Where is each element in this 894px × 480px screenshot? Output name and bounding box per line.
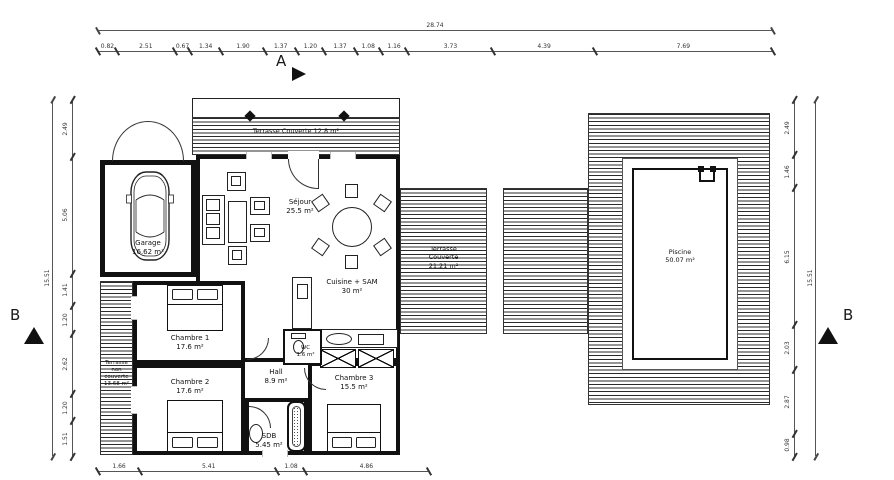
wardrobe	[358, 349, 394, 368]
floor-plan-drawing: 28.74 0.822.510.671.341.901.371.201.371.…	[0, 0, 894, 480]
dining-table	[332, 207, 372, 247]
section-arrow-a-icon	[292, 67, 306, 81]
dimension-value: 3.73	[407, 43, 493, 50]
room-label-terrasse-couverte-right: Terrasse Couverte 21.21 m²	[401, 245, 486, 270]
blanket-line	[168, 304, 222, 305]
room-label-terrasse-non-couverte: Terrasse non couverte 13.68 m²	[101, 360, 132, 388]
sofa-cushion	[206, 199, 220, 211]
room-label-garage: Garage 16.62 m²	[105, 239, 191, 257]
pillow	[197, 289, 218, 300]
dimension-line-right-total: 15.51	[815, 100, 816, 456]
section-label-a: A	[276, 52, 286, 70]
dimension-value: 4.86	[305, 463, 428, 470]
sofa-cushion	[206, 213, 220, 225]
wardrobe	[320, 349, 356, 368]
dimension-segment: 2.62	[63, 334, 73, 394]
pillow	[172, 289, 193, 300]
entrance-door-leaf	[318, 159, 319, 189]
blanket-line	[328, 432, 380, 433]
room-label-terrasse-couverte-top: Terrasse Couverte 12.8 m²	[193, 127, 399, 135]
dimension-segment: 0.82	[98, 40, 117, 52]
dimension-segment: 1.08	[356, 40, 381, 52]
section-label-b-right: B	[843, 306, 853, 324]
dimension-segment: 1.08	[277, 460, 304, 472]
section-label-b-left: B	[10, 306, 20, 324]
armchair	[250, 197, 270, 215]
dimension-value: 1.08	[356, 43, 381, 50]
dimension-value: 28.74	[98, 22, 772, 29]
pillow	[332, 437, 352, 448]
garage-door-arc	[148, 121, 184, 161]
dimension-segment: 3.73	[407, 40, 493, 52]
room-label-cuisine: Cuisine + SAM 30 m²	[317, 278, 387, 296]
dimension-value: 4.39	[493, 43, 594, 50]
section-arrow-b-right-icon	[818, 327, 838, 344]
dimension-segment: 2.03	[785, 325, 795, 370]
dimension-value: 15.51	[807, 269, 814, 286]
dimension-segment: 1.34	[190, 40, 221, 52]
toilet-tank	[291, 333, 306, 339]
room-label-chambre-1: Chambre 1 17.6 m²	[160, 334, 220, 352]
dimension-line-top-total: 28.74	[98, 30, 772, 31]
dimension-value: 7.69	[595, 43, 772, 50]
dimension-value: 2.62	[62, 357, 69, 370]
bed	[167, 285, 223, 331]
section-marker-b-right: B	[818, 306, 864, 350]
dimension-value: 1.37	[265, 43, 297, 50]
dining-chair	[345, 255, 358, 269]
dimension-value: 1.46	[784, 165, 791, 178]
window	[131, 296, 137, 320]
dimension-segment: 0.98	[785, 434, 795, 456]
dimension-value: 2.51	[117, 43, 175, 50]
dimension-value: 1.20	[62, 401, 69, 414]
room-label-chambre-3: Chambre 3 15.5 m²	[322, 374, 386, 392]
dimension-segments-right: 2.491.466.152.032.870.98	[785, 100, 795, 456]
dimension-value: 5.41	[140, 463, 277, 470]
dimension-value: 5.06	[62, 209, 69, 222]
room-label-hall: Hall 8.9 m²	[256, 368, 296, 386]
dimension-value: 15.51	[44, 269, 51, 286]
dimension-segment: 1.20	[297, 40, 325, 52]
garage-door-arc	[112, 121, 148, 161]
window	[246, 152, 272, 159]
window	[330, 152, 356, 159]
dimension-segment: 2.51	[117, 40, 175, 52]
dimension-segment: 4.39	[493, 40, 594, 52]
armchair-seat	[254, 228, 265, 237]
pool-ladder-icon	[699, 170, 715, 182]
dimension-segment: 5.41	[140, 460, 277, 472]
dimension-segment: 7.69	[595, 40, 772, 52]
coffee-table	[228, 201, 247, 243]
piscine: Piscine 50.07 m²	[632, 168, 728, 360]
dimension-value: 2.49	[784, 121, 791, 134]
sofa	[202, 195, 225, 245]
armchair-seat	[231, 176, 241, 186]
bed	[167, 400, 223, 452]
room-label-sdb: SDB 5.45 m²	[250, 432, 288, 450]
window	[262, 450, 288, 457]
armchair-seat	[254, 201, 265, 210]
dimension-segment: 2.49	[785, 100, 795, 155]
blanket-line	[168, 432, 222, 433]
dimension-segment: 1.37	[265, 40, 297, 52]
armchair	[250, 224, 270, 242]
room-label-wc: WC 1.6 m²	[291, 345, 320, 359]
terrasse-couverte-top-decking	[192, 117, 400, 155]
dimension-value: 1.90	[221, 43, 265, 50]
dimension-line-left-total: 15.51	[52, 100, 53, 456]
dimension-value: 1.41	[62, 283, 69, 296]
dimension-value: 6.15	[784, 250, 791, 263]
kitchen-stove	[358, 334, 384, 345]
pillow	[356, 437, 376, 448]
dimension-segment: 5.06	[63, 157, 73, 273]
room-label-chambre-2: Chambre 2 17.6 m²	[160, 378, 220, 396]
dimension-segment: 1.37	[324, 40, 356, 52]
dimension-value: 1.51	[62, 432, 69, 445]
bathtub	[287, 401, 306, 452]
terrasse-couverte-top: Terrasse Couverte 12.8 m²	[192, 98, 400, 155]
dimension-value: 2.49	[62, 122, 69, 135]
pool-walkway-decking	[503, 188, 588, 334]
bed	[327, 404, 381, 452]
dimension-value: 1.08	[277, 463, 304, 470]
section-marker-b-left: B	[10, 306, 56, 350]
dimension-segment: 1.41	[63, 274, 73, 306]
dimension-segment: 4.86	[305, 460, 428, 472]
section-arrow-b-left-icon	[24, 327, 44, 344]
terrasse-non-couverte: Terrasse non couverte 13.68 m²	[100, 281, 133, 455]
room-garage: Garage 16.62 m²	[100, 160, 196, 277]
dimension-segment: 1.90	[221, 40, 265, 52]
dimension-segment: 1.16	[381, 40, 408, 52]
armchair	[228, 246, 247, 265]
dimension-value: 2.87	[784, 396, 791, 409]
dining-chair	[345, 184, 358, 198]
dimension-value: 0.98	[784, 438, 791, 451]
dimension-segments-top: 0.822.510.671.341.901.371.201.371.081.16…	[98, 40, 772, 52]
dimension-segment: 2.49	[63, 100, 73, 157]
kitchen-sink	[326, 333, 352, 345]
armchair-seat	[232, 250, 242, 260]
dimension-segment: 1.66	[98, 460, 140, 472]
sofa-cushion	[206, 227, 220, 239]
room-wc: WC 1.6 m²	[283, 329, 322, 365]
dimension-value: 1.20	[62, 313, 69, 326]
pillow	[172, 437, 193, 448]
dimension-value: 2.03	[784, 341, 791, 354]
dimension-value: 1.20	[297, 43, 325, 50]
section-marker-a: A	[276, 52, 316, 86]
dimension-segment: 2.87	[785, 370, 795, 434]
dimension-segment: 1.20	[63, 306, 73, 334]
room-label-piscine: Piscine 50.07 m²	[634, 248, 726, 265]
dimension-value: 1.37	[324, 43, 356, 50]
dimension-value: 1.66	[98, 463, 140, 470]
dimension-segment: 1.46	[785, 155, 795, 188]
armchair	[227, 172, 246, 191]
dimension-segment: 1.51	[63, 421, 73, 456]
dimension-segments-left: 2.495.061.411.202.621.201.51	[63, 100, 73, 456]
kitchen-cabinet	[292, 277, 312, 329]
pillow	[197, 437, 218, 448]
dimension-segment: 1.20	[63, 394, 73, 422]
window	[131, 386, 137, 414]
dimension-segment: 6.15	[785, 188, 795, 325]
bathtub-interior	[292, 406, 301, 447]
kitchen-cabinet-detail	[297, 284, 308, 299]
terrasse-couverte-right: Terrasse Couverte 21.21 m²	[400, 188, 487, 334]
dimension-value: 1.34	[190, 43, 221, 50]
dimension-segments-bottom: 1.665.411.084.86	[98, 460, 428, 472]
